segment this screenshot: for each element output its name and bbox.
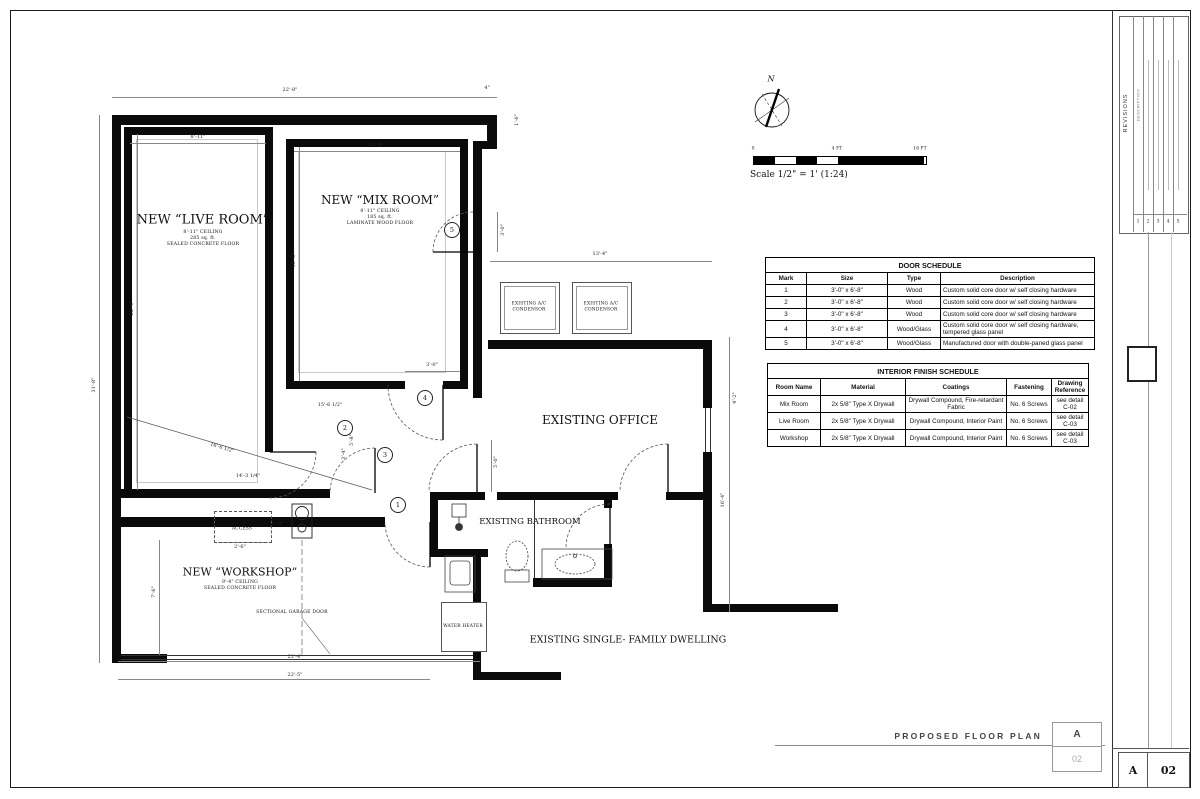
dim-interior-a: 15'-6 1/2"	[318, 402, 343, 408]
drawing-sheet: NEW “LIVE ROOM” 8'-11" CEILING 285 sq. f…	[0, 0, 1200, 799]
workshop-floor-note: SEALED CONCRETE FLOOR	[204, 586, 276, 592]
revisions-description-label: DESCRIPTION	[1136, 89, 1141, 122]
drawing-title: PROPOSED FLOOR PLAN	[770, 731, 1042, 741]
dim-overall-left: 31'-8"	[91, 378, 97, 393]
table-row: 23'-0" x 6'-8"WoodCustom solid core door…	[766, 297, 1095, 309]
ac-condenser-label: EXISTING A/C CONDENSOR	[577, 301, 625, 312]
revision-row-number: 4	[1167, 220, 1170, 225]
title-ref-number: 02	[1053, 747, 1101, 770]
dim-interior-b: 14'-3 1/4"	[236, 473, 261, 479]
ac-condenser-label: EXISTING A/C CONDENSOR	[505, 301, 553, 312]
revision-row-number: 1	[1137, 220, 1140, 225]
dim-door2-a: 5'-8"	[349, 434, 355, 446]
dim-hall: 5'-0"	[493, 456, 499, 468]
label-existing-dwelling: EXISTING SINGLE- FAMILY DWELLING	[530, 635, 726, 646]
dim-attic-offset: 10'-0"	[269, 521, 284, 527]
sheet-letter: A	[1119, 753, 1148, 787]
table-row: 53'-0" x 6'-8"Wood/GlassManufactured doo…	[766, 338, 1095, 350]
utility-sink	[445, 556, 475, 592]
room-label-mix-room: NEW “MIX ROOM”	[321, 193, 439, 207]
diagonal-dim-line	[127, 417, 372, 490]
structural-post	[292, 504, 312, 538]
north-label: N	[768, 75, 775, 84]
door-swing-arc	[270, 212, 668, 567]
leader-line	[302, 618, 330, 654]
dim-live-width: 8'-11"	[191, 134, 206, 140]
door-tag-4: 4	[417, 390, 433, 406]
firm-logo: TLA	[1127, 346, 1157, 382]
door-tag-5: 5	[444, 222, 460, 238]
room-label-office: EXISTING OFFICE	[542, 413, 658, 427]
revision-row-number: 3	[1157, 220, 1160, 225]
mix-room-floor-note: LAMINATE WOOD FLOOR	[347, 221, 413, 227]
dim-office-top: 13'-4"	[593, 251, 608, 257]
vanity-sink	[542, 549, 612, 579]
sheet-number: 02	[1148, 753, 1189, 787]
revisions-label: REVISIONS	[1123, 94, 1129, 133]
live-room-area-note: 285 sq. ft.	[190, 236, 216, 242]
table-row: 33'-0" x 6'-8"WoodCustom solid core door…	[766, 309, 1095, 321]
sheet-number-box: A 02	[1118, 752, 1190, 788]
table-row: Mix Room2x 5/8" Type X DrywallDrywall Co…	[768, 396, 1089, 413]
revision-row-number: 2	[1147, 220, 1150, 225]
scale-tick-zero: 0	[752, 147, 755, 152]
scale-tick-end: 16 FT	[913, 147, 926, 152]
room-label-live-room: NEW “LIVE ROOM”	[137, 213, 270, 228]
dim-overall-top: 22'-8"	[283, 87, 298, 93]
dim-garage-width: 22'-5"	[288, 672, 303, 678]
dim-door4: 3'-0"	[426, 362, 438, 368]
title-ref-box: A 02	[1052, 722, 1102, 772]
live-room-ceiling-note: 8'-11" CEILING	[183, 230, 222, 236]
door-tag-1: 1	[390, 497, 406, 513]
dim-overall-bottom: 22'-4"	[288, 654, 303, 660]
dim-live-height: 22'-4"	[129, 301, 135, 316]
revision-row-number: 5	[1177, 220, 1180, 225]
dim-attic-width: 2'-6"	[234, 544, 246, 550]
workshop-ceiling-note: 9'-4" CEILING	[222, 580, 258, 586]
door-schedule-table: DOOR SCHEDULE Mark Size Type Description…	[765, 257, 1095, 350]
north-arrow-icon	[755, 89, 789, 127]
dim-jog: 4"	[484, 85, 489, 91]
table-row: 13'-0" x 6'-8"WoodCustom solid core door…	[766, 285, 1095, 297]
door-tag-3: 3	[377, 447, 393, 463]
mix-room-ceiling-note: 8'-11" CEILING	[360, 209, 399, 215]
toilet	[505, 541, 529, 582]
dim-door5: 3'-0"	[500, 224, 506, 236]
table-row: 43'-0" x 6'-8"Wood/GlassCustom solid cor…	[766, 321, 1095, 338]
dim-right-lower: 16'-4"	[720, 493, 726, 508]
bath-equipment	[452, 504, 466, 531]
dim-jog-side: 1'-6"	[514, 114, 520, 126]
garage-door-label: SECTIONAL GARAGE DOOR	[232, 610, 352, 616]
door-schedule-title: DOOR SCHEDULE	[766, 258, 1095, 273]
scale-tick-mid: 4 FT	[832, 147, 842, 152]
dim-mix-height: 15'-6"	[291, 253, 297, 268]
scale-note: Scale 1/2" = 1' (1:24)	[750, 170, 848, 180]
finish-schedule-title: INTERIOR FINISH SCHEDULE	[768, 364, 1089, 379]
attic-access-label: NEW ATTIC ACCESS	[220, 520, 264, 531]
water-heater-label: WATER HEATER	[443, 624, 483, 630]
dim-right-upper: 4'-2"	[732, 392, 738, 404]
table-row: Live Room2x 5/8" Type X DrywallDrywall C…	[768, 413, 1089, 430]
dim-door2-b: 3'-4"	[341, 448, 347, 460]
dim-mix-width: 13'-0"	[369, 142, 384, 148]
live-room-floor-note: SEALED CONCRETE FLOOR	[167, 242, 239, 248]
mix-room-area-note: 185 sq. ft.	[367, 215, 393, 221]
title-ref-letter: A	[1053, 723, 1101, 747]
dim-workshop-left: 7'-6"	[151, 586, 157, 598]
room-label-workshop: NEW “WORKSHOP”	[183, 566, 297, 579]
room-label-bathroom: EXISTING BATHROOM	[479, 517, 580, 527]
table-row: Workshop2x 5/8" Type X DrywallDrywall Co…	[768, 430, 1089, 447]
finish-schedule-table: INTERIOR FINISH SCHEDULE Room Name Mater…	[767, 363, 1089, 447]
